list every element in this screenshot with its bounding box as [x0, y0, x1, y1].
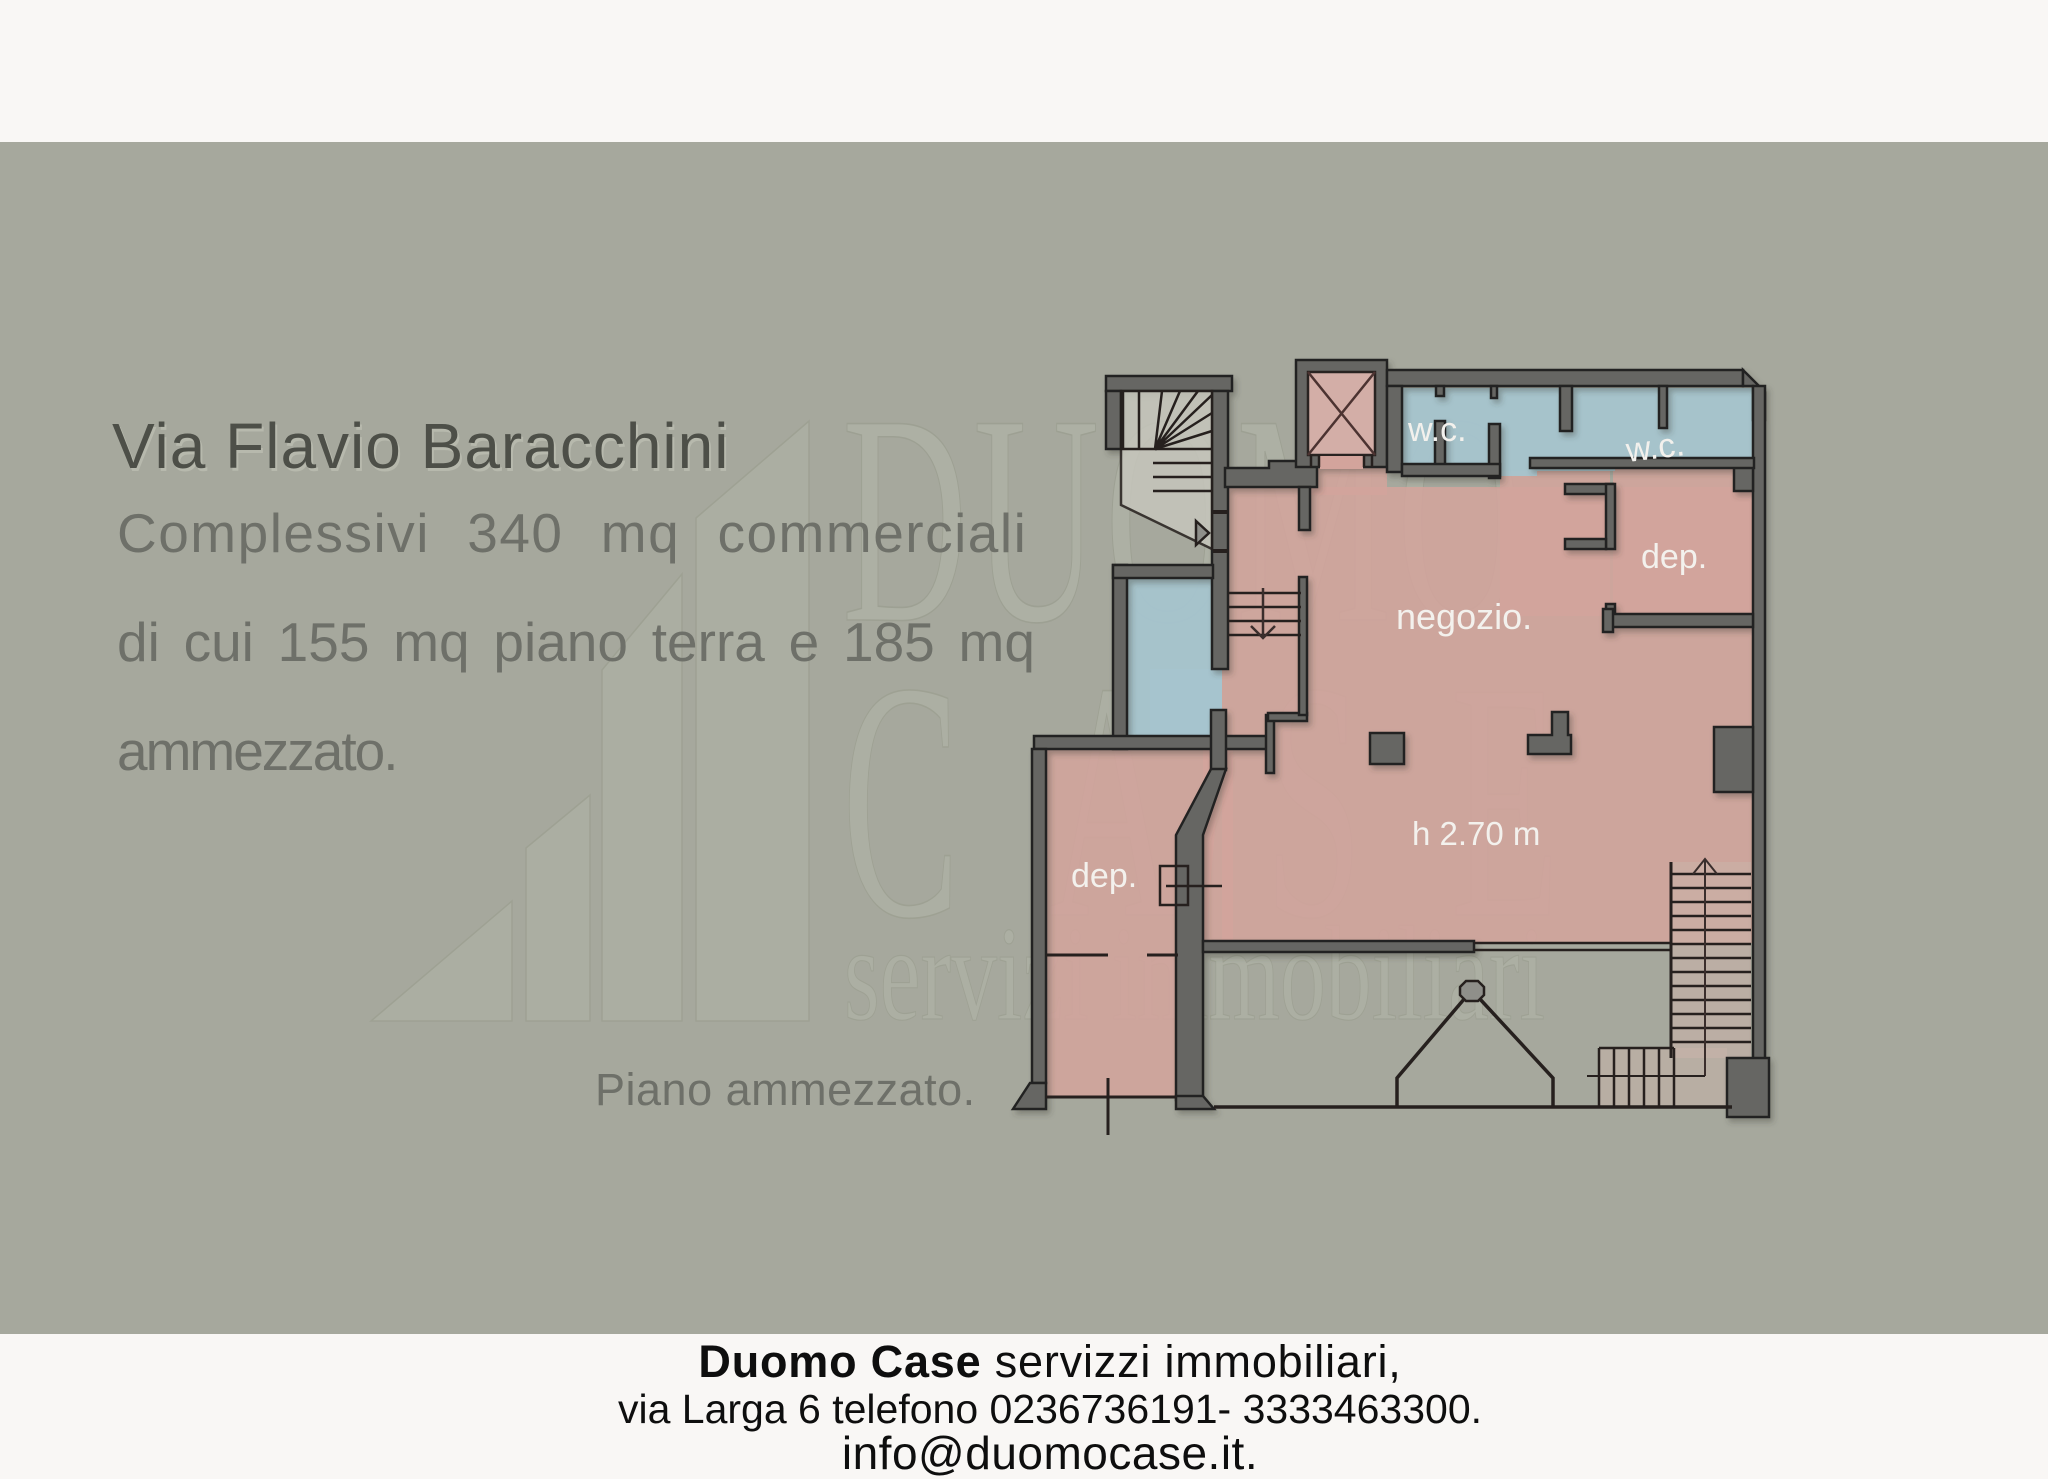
svg-text:Via Flavio Baracchini: Via Flavio Baracchini [112, 410, 729, 482]
svg-text:w.c.: w.c. [1407, 411, 1467, 449]
svg-text:ammezzato.: ammezzato. [117, 720, 397, 782]
svg-text:Duomo Case servizzi immobiliar: Duomo Case servizzi immobiliari, [698, 1336, 1401, 1387]
svg-text:dep.: dep. [1641, 538, 1707, 576]
svg-text:dep.: dep. [1071, 857, 1137, 895]
svg-text:h 2.70 m: h 2.70 m [1412, 815, 1540, 852]
svg-text:Piano ammezzato.: Piano ammezzato. [595, 1064, 976, 1115]
svg-text:w.c.: w.c. [1623, 425, 1687, 470]
svg-text:via Larga 6 telefono 023673619: via Larga 6 telefono 0236736191- 3333463… [618, 1386, 1482, 1432]
svg-text:negozio.: negozio. [1396, 596, 1532, 637]
svg-text:Complessivi 340 mq commercia: Complessivi 340 mq commerciali [117, 502, 1027, 564]
svg-text:info@duomocase.it.: info@duomocase.it. [842, 1427, 1258, 1479]
svg-text:di cui 155 mq piano terra e 18: di cui 155 mq piano terra e 185 mq [117, 611, 1035, 673]
